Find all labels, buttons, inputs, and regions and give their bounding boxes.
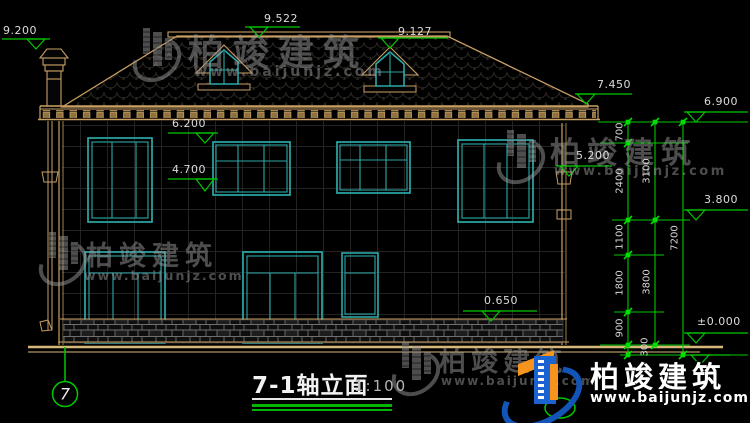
downspout [40, 121, 58, 331]
elevation-label-plinth: 0.650 [484, 295, 518, 307]
stone-base [58, 319, 569, 343]
elevation-label-eave: 7.450 [597, 79, 631, 91]
drawing-title: 7-1轴立面 [252, 366, 369, 400]
elevation-label-cornice: 6.900 [704, 96, 738, 108]
dim-3800: 3800 [642, 269, 653, 294]
dim-1800: 1800 [615, 270, 626, 295]
elevation-label-right-head: 5.200 [576, 150, 610, 162]
elevation-label-ground: ±0.000 [697, 316, 741, 328]
dim-700: 700 [615, 122, 626, 141]
elevation-label-sec-ridge: 9.127 [398, 26, 432, 38]
dim-900: 900 [615, 318, 626, 337]
site-logo: 柏竣建筑 www.baijunjz.com [494, 348, 750, 418]
title-underline-green-2 [252, 409, 392, 411]
dim-2400: 2400 [615, 168, 626, 193]
axis-bubble-number: 7 [60, 385, 70, 404]
logo-pillar-icon [550, 364, 558, 400]
dim-3100: 3100 [642, 158, 653, 183]
elevation-label-f2-head: 6.200 [172, 118, 206, 130]
title-underline-white [252, 398, 392, 400]
elevation-label-floor2: 3.800 [704, 194, 738, 206]
dim-1100: 1100 [615, 224, 626, 249]
elevation-label-f2-sill: 4.700 [172, 164, 206, 176]
roof [62, 32, 588, 107]
cad-elevation-drawing: 柏竣建筑 www.baijunjz.com 柏竣建筑 www.baijunjz.… [0, 0, 750, 423]
drawing-scale: 1:100 [354, 377, 407, 395]
chimney [40, 49, 68, 106]
title-underline-green [252, 404, 392, 407]
dim-7200: 7200 [670, 225, 681, 250]
logo-windows-icon [538, 360, 544, 400]
elevation-label-main-ridge: 9.522 [264, 13, 298, 25]
logo-url-text: www.baijunjz.com [590, 390, 749, 406]
elevation-label-chimney: 9.200 [3, 25, 37, 37]
cornice [38, 106, 600, 120]
